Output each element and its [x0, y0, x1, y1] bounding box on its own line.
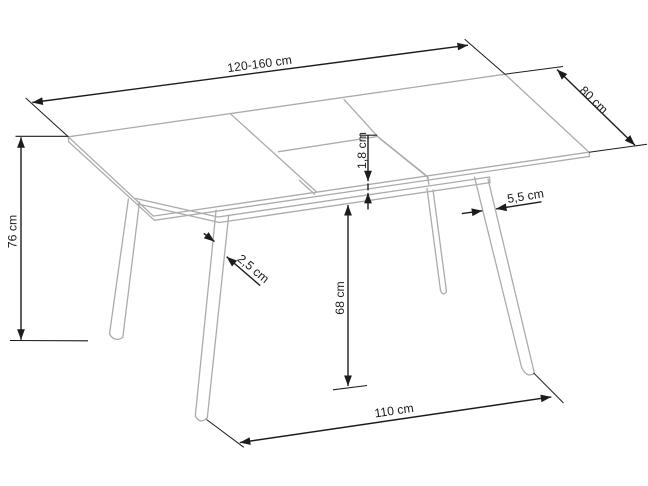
svg-text:5,5 cm: 5,5 cm	[506, 186, 545, 206]
svg-text:120-160 cm: 120-160 cm	[226, 53, 292, 75]
svg-text:76 cm: 76 cm	[6, 215, 20, 249]
svg-text:1,8 cm: 1,8 cm	[355, 132, 369, 169]
svg-text:80 cm: 80 cm	[577, 83, 611, 116]
svg-text:68 cm: 68 cm	[333, 281, 347, 315]
